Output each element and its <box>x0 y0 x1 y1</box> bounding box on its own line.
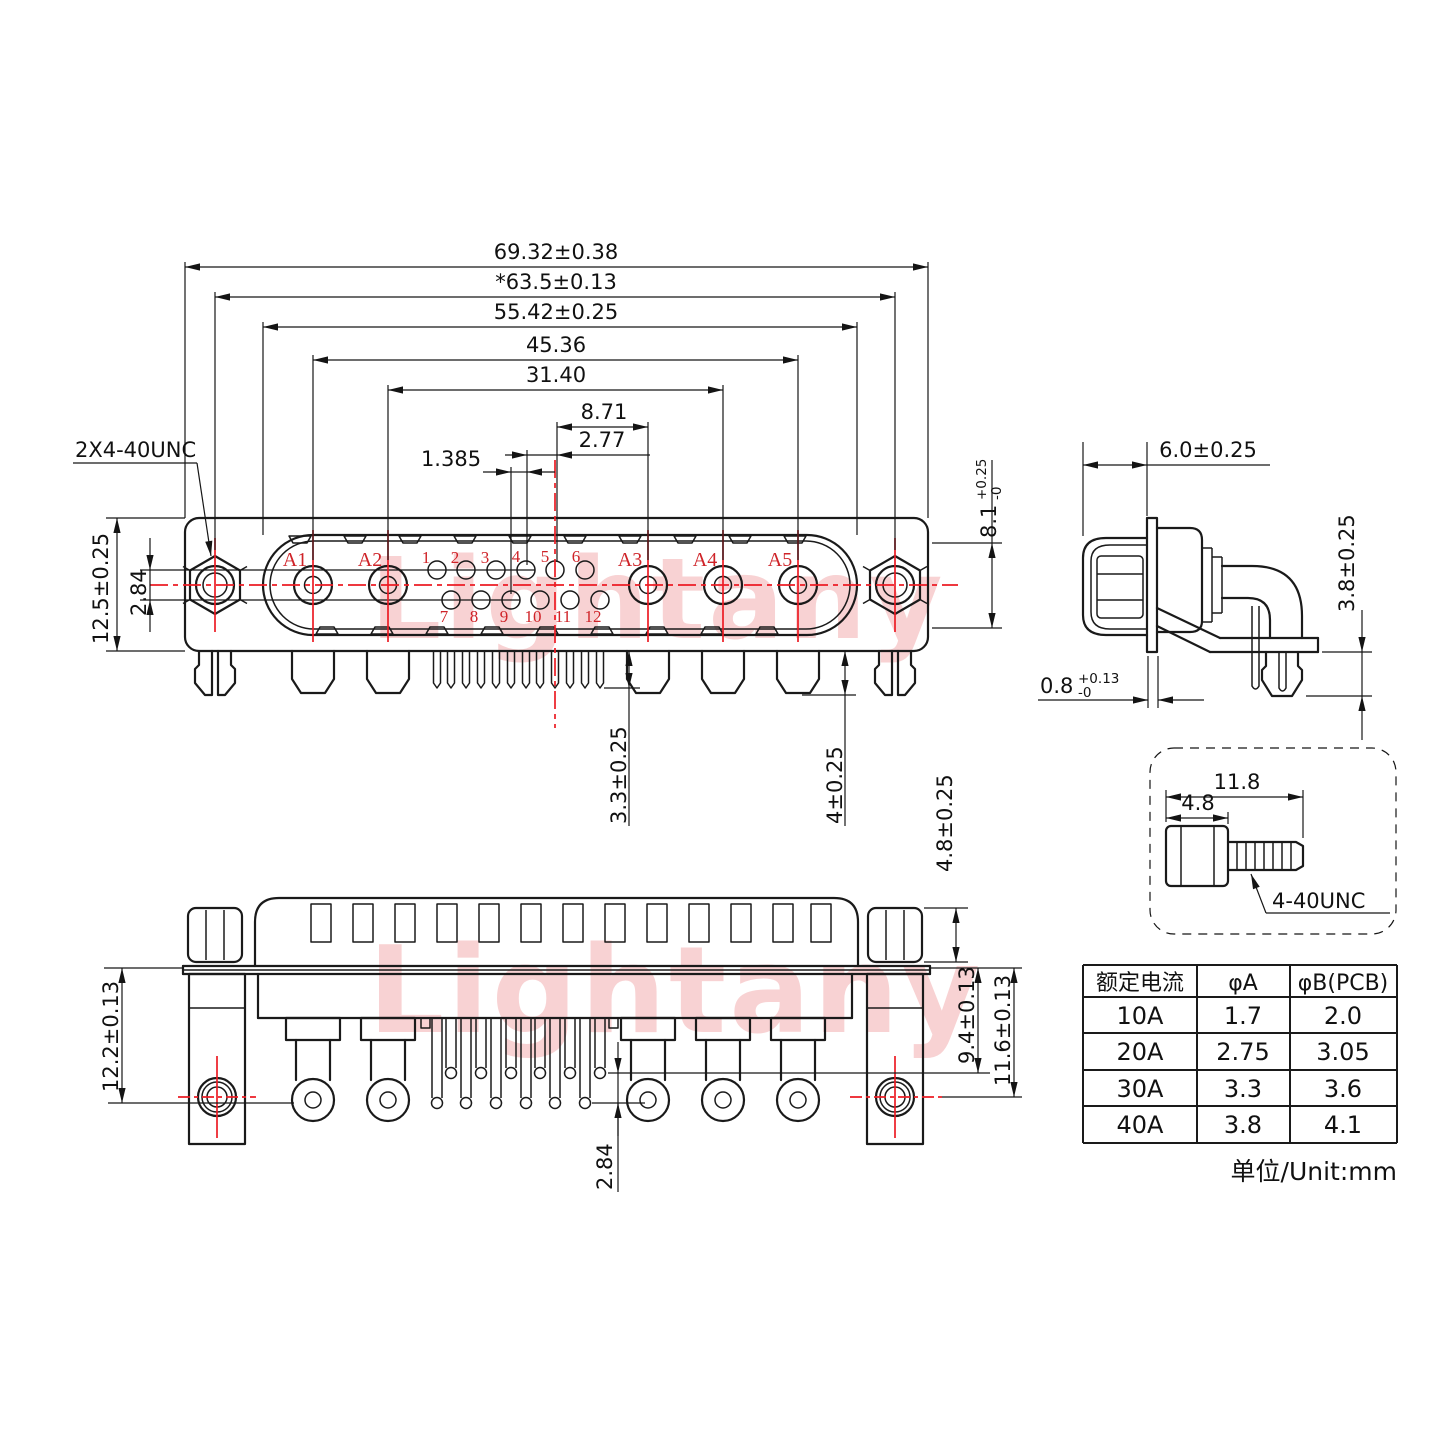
side-dimensions: 6.0±0.25 0.8 +0.13 -0 3.8±0.25 <box>1038 438 1372 740</box>
svg-text:-0: -0 <box>1078 685 1091 701</box>
svg-text:5: 5 <box>541 547 550 566</box>
dim-plate-to-short-pins: 9.4±0.13 <box>955 966 979 1064</box>
dim-a1-a5-span: 45.36 <box>526 333 586 357</box>
dim-body-length: 4.8 <box>1181 791 1214 815</box>
dim-shell-height: 8.1 +0.25 -0 <box>974 459 1005 538</box>
svg-text:3.8: 3.8 <box>1224 1111 1262 1139</box>
dim-front-depth: 6.0±0.25 <box>1159 438 1257 462</box>
dim-total-length: 11.8 <box>1214 770 1261 794</box>
svg-text:0.8: 0.8 <box>1040 674 1073 698</box>
table-header-dia-b: φB(PCB) <box>1298 971 1389 996</box>
unit-note: 单位/Unit:mm <box>1231 1157 1397 1186</box>
svg-text:9: 9 <box>500 607 509 626</box>
standoff-left <box>188 908 242 962</box>
dim-a2-a4-span: 31.40 <box>526 363 586 387</box>
dim-shell-width: 55.42±0.25 <box>494 300 618 324</box>
dim-flange-thickness: 0.8 +0.13 -0 <box>1040 671 1119 701</box>
dim-bracket-to-long-pins: 12.2±0.13 <box>99 981 123 1092</box>
bracket-left <box>178 974 256 1144</box>
table-header-dia-a: φA <box>1228 971 1258 996</box>
technical-drawing-page: Lightany Lightany <box>0 0 1440 1440</box>
dim-half-pitch: 1.385 <box>421 447 481 471</box>
dim-signal-pin-length: 3.3±0.25 <box>607 726 631 824</box>
svg-text:3.05: 3.05 <box>1316 1038 1369 1066</box>
coax-label-a2: A2 <box>358 549 382 571</box>
thread-lines <box>1237 843 1291 869</box>
coax-label-a1: A1 <box>283 549 307 571</box>
front-view: A1 A2 A3 A4 A5 1 2 3 4 5 6 7 8 9 10 11 1… <box>73 240 1005 826</box>
connector-drawing-svg: Lightany Lightany <box>0 0 1440 1440</box>
dim-overall-width: 69.32±0.38 <box>494 240 618 264</box>
svg-text:8.1: 8.1 <box>977 505 1001 538</box>
svg-text:1: 1 <box>422 548 431 567</box>
svg-text:10A: 10A <box>1117 1002 1165 1030</box>
svg-text:40A: 40A <box>1117 1111 1165 1139</box>
coax-label-a5: A5 <box>768 549 792 571</box>
table-row: 30A 3.3 3.6 <box>1117 1075 1363 1103</box>
dim-standoff-height: 4.8±0.25 <box>933 774 957 872</box>
svg-text:10: 10 <box>525 607 542 626</box>
front-dimensions: 69.32±0.38 *63.5±0.13 55.42±0.25 45.36 3… <box>73 240 1005 826</box>
svg-text:4: 4 <box>512 547 521 566</box>
svg-text:4.1: 4.1 <box>1324 1111 1362 1139</box>
screw-thread-label: 4-40UNC <box>1272 889 1365 913</box>
svg-text:7: 7 <box>440 607 449 626</box>
table-header-current: 额定电流 <box>1096 971 1184 996</box>
svg-text:3.3: 3.3 <box>1224 1075 1262 1103</box>
svg-text:30A: 30A <box>1117 1075 1165 1103</box>
table-row: 10A 1.7 2.0 <box>1117 1002 1363 1030</box>
svg-text:+0.25: +0.25 <box>974 459 990 500</box>
dim-center-to-a3: 8.71 <box>581 400 628 424</box>
svg-text:8: 8 <box>470 607 479 626</box>
svg-text:12: 12 <box>585 607 602 626</box>
dim-body-height: 12.5±0.25 <box>89 533 113 644</box>
svg-text:2.75: 2.75 <box>1216 1038 1269 1066</box>
svg-text:-0: -0 <box>989 487 1005 500</box>
svg-text:2.0: 2.0 <box>1324 1002 1362 1030</box>
svg-text:11: 11 <box>555 607 571 626</box>
dim-pin-pitch: 2.77 <box>579 428 626 452</box>
svg-text:1.7: 1.7 <box>1224 1002 1262 1030</box>
svg-text:20A: 20A <box>1117 1038 1165 1066</box>
spec-table: 额定电流 φA φB(PCB) 10A 1.7 2.0 20A 2.75 3.0… <box>1083 965 1397 1186</box>
svg-text:6: 6 <box>572 547 581 566</box>
thread-callout: 2X4-40UNC <box>75 438 196 462</box>
coax-label-a4: A4 <box>693 549 717 571</box>
svg-text:3: 3 <box>481 548 490 567</box>
dim-mount-span: *63.5±0.13 <box>495 270 617 294</box>
dim-coax-pin-length: 4±0.25 <box>823 746 847 824</box>
screw-detail: 11.8 4.8 4-40UNC <box>1150 748 1396 934</box>
table-row: 20A 2.75 3.05 <box>1117 1038 1370 1066</box>
svg-text:3.6: 3.6 <box>1324 1075 1362 1103</box>
dim-pin-row-offset: 2.84 <box>593 1143 617 1190</box>
coax-label-a3: A3 <box>618 549 642 571</box>
dim-row-offset: 2.84 <box>127 569 151 616</box>
table-row: 40A 3.8 4.1 <box>1117 1111 1363 1139</box>
dim-pin-protrusion: 3.8±0.25 <box>1335 514 1359 612</box>
svg-text:2: 2 <box>451 548 460 567</box>
side-view: 6.0±0.25 0.8 +0.13 -0 3.8±0.25 <box>1038 438 1372 740</box>
dim-plate-to-holes: 11.6±0.13 <box>991 975 1015 1086</box>
